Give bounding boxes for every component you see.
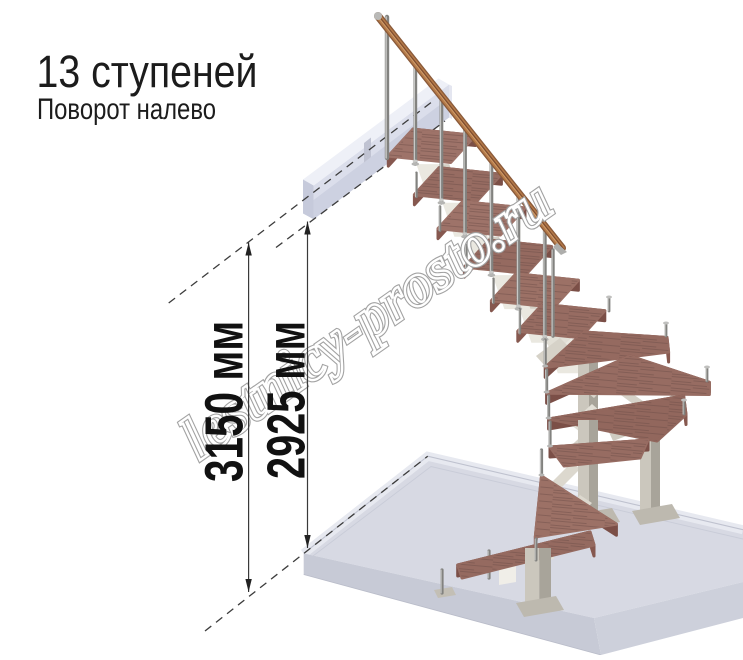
svg-text:2925 мм: 2925 мм [257, 321, 317, 479]
svg-text:Поворот налево: Поворот налево [37, 93, 216, 126]
svg-text:3150 мм: 3150 мм [195, 321, 255, 482]
svg-text:13 ступеней: 13 ступеней [37, 46, 258, 97]
